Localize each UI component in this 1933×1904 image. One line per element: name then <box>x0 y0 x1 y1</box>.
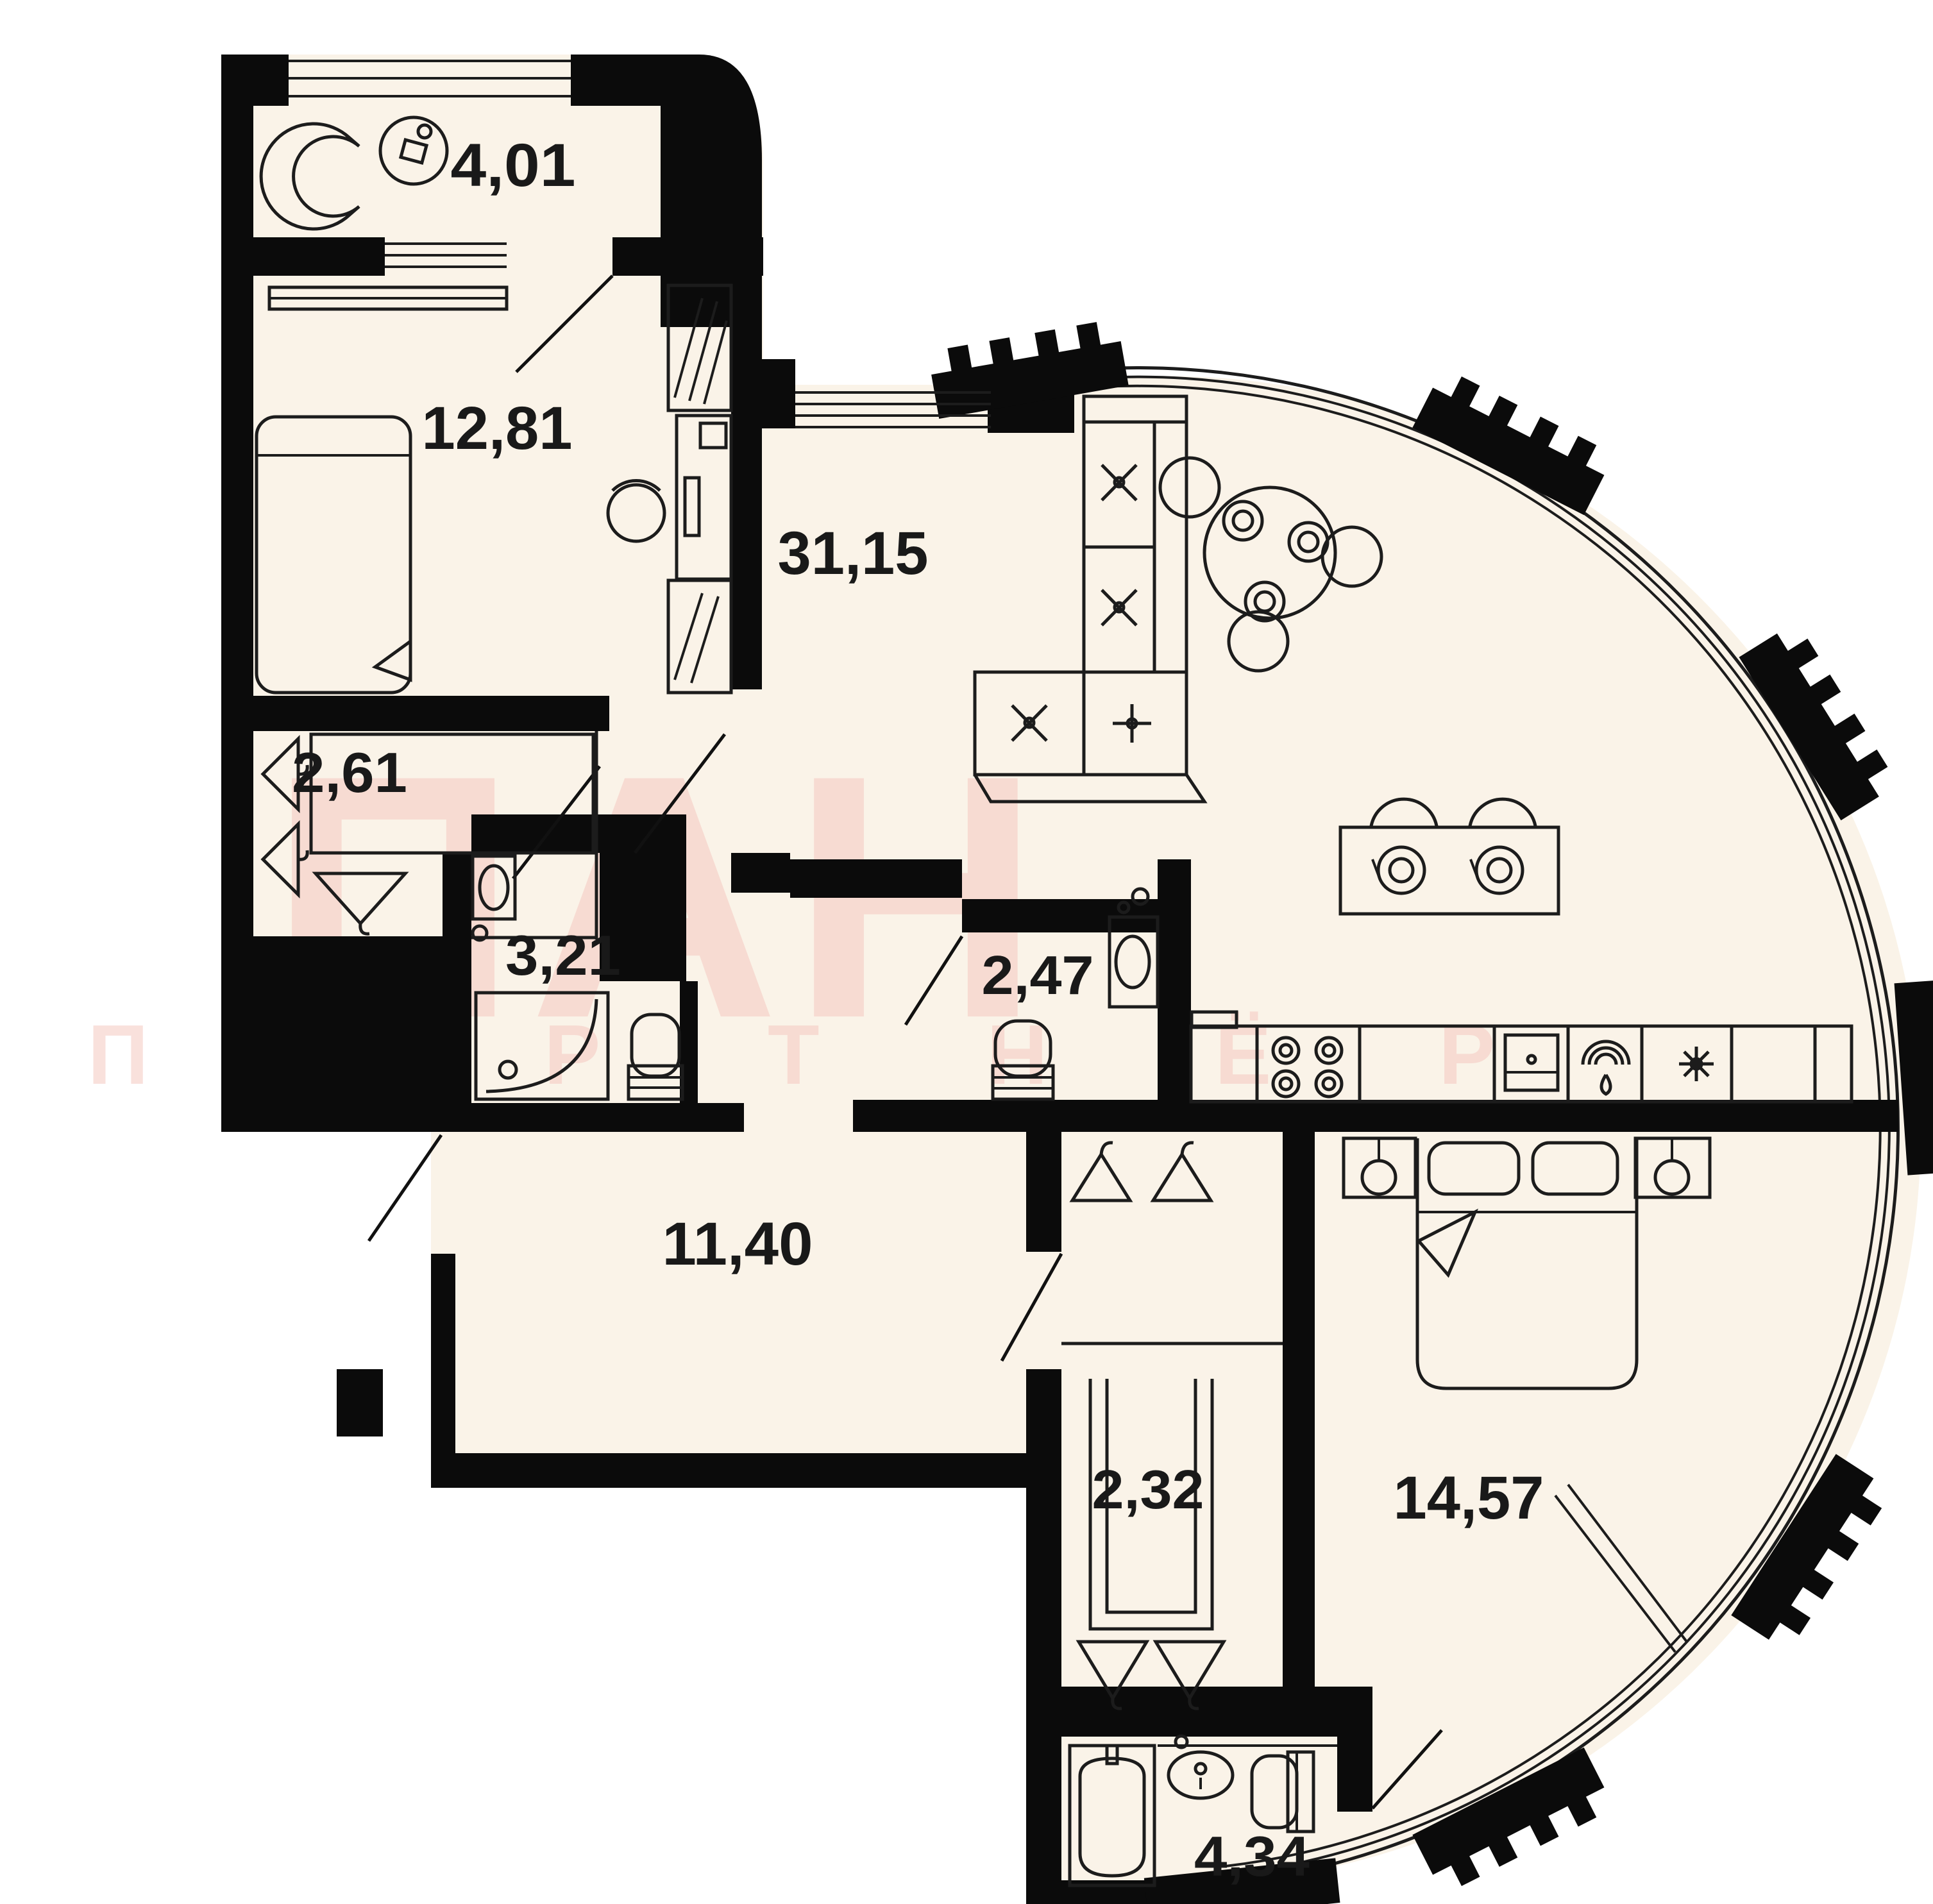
label-shower: 3,21 <box>505 923 621 987</box>
floor-plan-svg: ПАН П А Р Т Н Ё Р <box>0 0 1933 1904</box>
label-wardrobe: 2,61 <box>292 741 407 804</box>
label-wc: 2,47 <box>982 945 1094 1006</box>
label-bedroom: 12,81 <box>422 394 573 462</box>
label-bathroom: 4,34 <box>1194 1824 1310 1888</box>
label-closet: 2,32 <box>1092 1460 1204 1521</box>
entrance-door <box>369 1135 441 1241</box>
label-living: 31,15 <box>778 519 929 587</box>
label-bedroom2: 14,57 <box>1394 1464 1544 1532</box>
hob-icon <box>1679 1047 1714 1081</box>
label-loggia: 4,01 <box>451 131 576 199</box>
label-hallway: 11,40 <box>663 1210 813 1278</box>
floor-plan-canvas: ПАН П А Р Т Н Ё Р <box>0 0 1933 1904</box>
